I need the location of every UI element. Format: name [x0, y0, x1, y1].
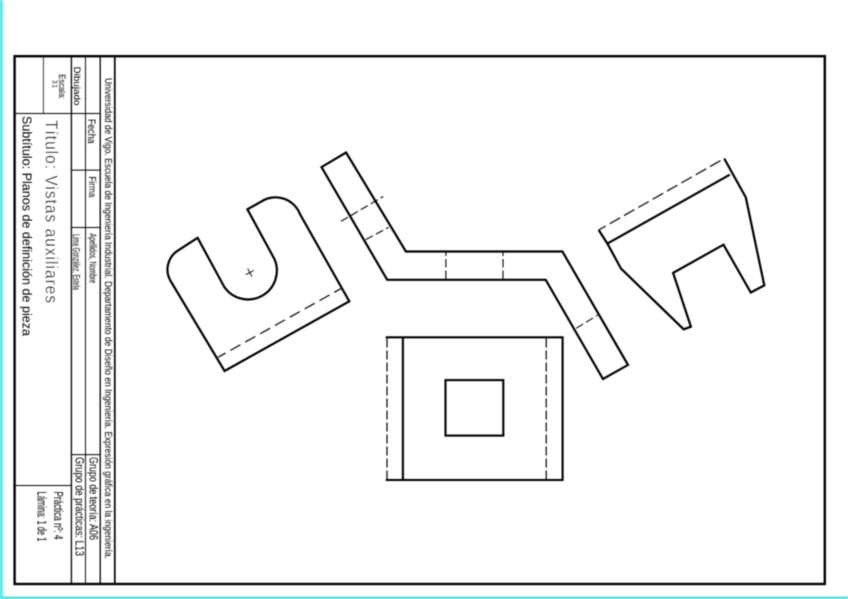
svg-text:Dibujado: Dibujado	[71, 67, 82, 106]
svg-text:Práctica nº: 4: Práctica nº: 4	[51, 492, 65, 540]
svg-text:Universidad de Vigo. Escuela d: Universidad de Vigo. Escuela de Ingenier…	[102, 78, 113, 559]
svg-text:Fecha: Fecha	[85, 119, 97, 144]
svg-text:Lima González, Estela: Lima González, Estela	[70, 234, 81, 290]
svg-text:Firma: Firma	[86, 176, 98, 197]
svg-text:3:1: 3:1	[51, 80, 58, 88]
svg-text:Subtítulo: Planos de definició: Subtítulo: Planos de definición de pieza	[20, 116, 34, 336]
svg-text:Escala:: Escala:	[57, 74, 67, 99]
svg-text:Grupo de teoría: A06: Grupo de teoría: A06	[87, 457, 101, 540]
svg-text:Lámina: 1 de 1: Lámina: 1 de 1	[34, 492, 48, 542]
svg-text:Título: Vistas auxiliares: Título: Vistas auxiliares	[41, 120, 60, 303]
svg-text:Grupo de prácticas: L13: Grupo de prácticas: L13	[72, 457, 86, 556]
svg-text:Apellidos, Nombre: Apellidos, Nombre	[86, 233, 97, 283]
